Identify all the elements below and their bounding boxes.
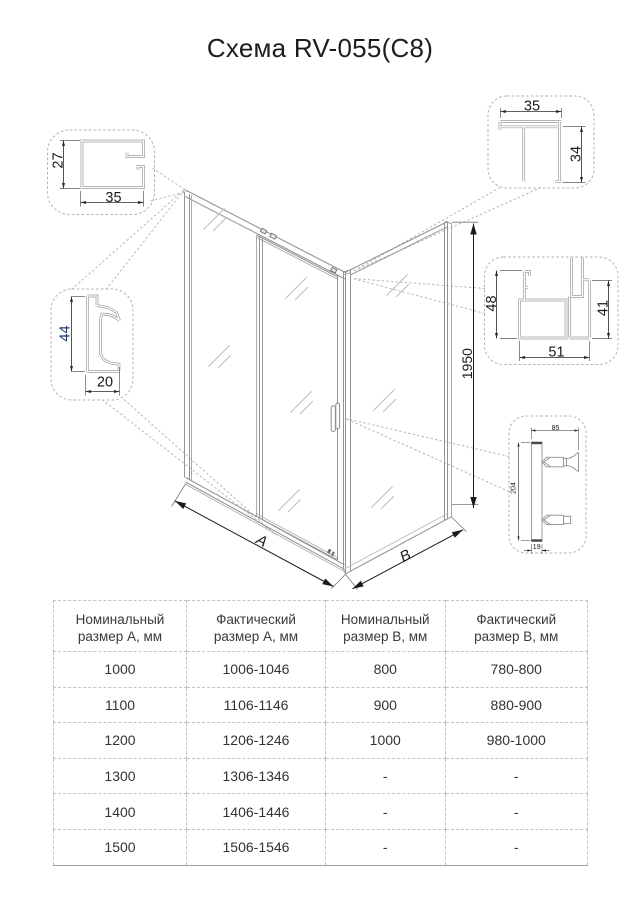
svg-text:44: 44: [58, 325, 74, 341]
svg-text:48: 48: [484, 295, 500, 311]
svg-text:20: 20: [97, 374, 113, 390]
svg-text:51: 51: [548, 344, 564, 360]
svg-text:35: 35: [524, 98, 540, 114]
svg-text:1950: 1950: [459, 348, 475, 379]
svg-text:19: 19: [533, 544, 541, 551]
svg-text:41: 41: [596, 300, 612, 316]
svg-text:85: 85: [552, 425, 560, 432]
svg-text:204: 204: [510, 482, 517, 494]
svg-text:35: 35: [105, 190, 121, 206]
svg-text:34: 34: [569, 146, 585, 162]
svg-text:B: B: [397, 546, 414, 566]
svg-text:A: A: [252, 531, 270, 551]
svg-text:27: 27: [50, 152, 66, 168]
